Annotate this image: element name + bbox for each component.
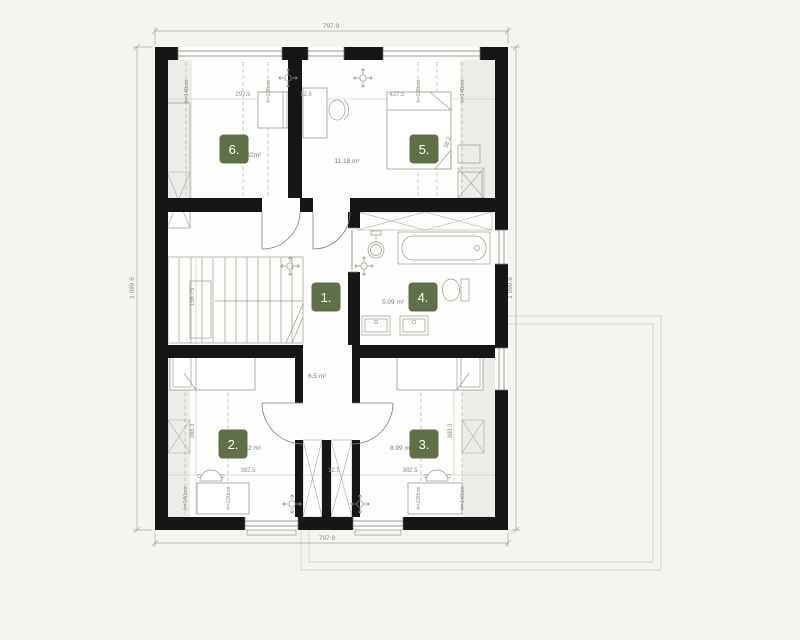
h140-label: h=140cm [183,486,189,510]
svg-text:5.: 5. [419,142,430,157]
h140-label: h=140cm [460,486,466,510]
svg-text:2.: 2. [228,437,239,452]
area-room4: 5.09 m² [382,299,405,306]
dim-bottom-width: 797.9 [319,535,336,542]
svg-text:4.: 4. [418,290,429,305]
dim-partition: 12.5 [300,92,312,98]
window-top-room5 [383,47,480,60]
dim-room6-width: 297.5 [235,92,251,98]
area-room5: 11.18 m² [334,158,360,165]
svg-text:1.: 1. [321,290,332,305]
dim-room5-width: 427.5 [389,92,405,98]
h140-label: h=140cm [184,79,190,103]
dim-stair-depth: 156.75 [190,287,196,306]
room-badge-2[interactable]: 2. [219,430,248,459]
area-room3: 8.99 m² [390,445,413,452]
floor-plan-drawing: 797.9 797.9 1 099.6 1 099.6 [0,0,800,640]
dim-room3-width: 382.5 [402,468,418,474]
dim-left-height: 1 099.6 [129,277,136,299]
dim-room3-depth: 388.3 [448,423,454,439]
h220-label: h=220cm [416,486,422,510]
floor-plan-canvas: 797.9 797.9 1 099.6 1 099.6 [0,0,800,640]
area-room1: 6.5 m² [308,373,327,380]
dim-right-height: 1 099.6 [507,277,514,299]
room-badge-6[interactable]: 6. [220,135,249,164]
window-right-room3 [495,348,508,390]
room-badge-5[interactable]: 5. [410,135,439,164]
h220-label: h=220cm [226,486,232,510]
desk-room2 [197,483,249,514]
room-badge-1[interactable]: 1. [312,283,341,312]
h220-label: h=220cm [266,79,272,103]
dresser-room6 [258,92,293,128]
h220-label: h=220cm [416,79,422,103]
window-right-bath [495,230,508,264]
room-badge-3[interactable]: 3. [410,430,439,459]
window-top-hall [308,47,344,60]
dim-partition-bottom: 12.5 [328,468,340,474]
dim-room2-depth: 388.3 [190,423,196,439]
svg-text:6.: 6. [229,142,240,157]
window-top-room6 [178,47,282,60]
dim-top-width: 797.9 [323,23,340,30]
svg-text:3.: 3. [419,437,430,452]
room-badge-4[interactable]: 4. [409,283,438,312]
dim-room2-width: 382.5 [240,468,256,474]
h140-label: h=140cm [460,79,466,103]
